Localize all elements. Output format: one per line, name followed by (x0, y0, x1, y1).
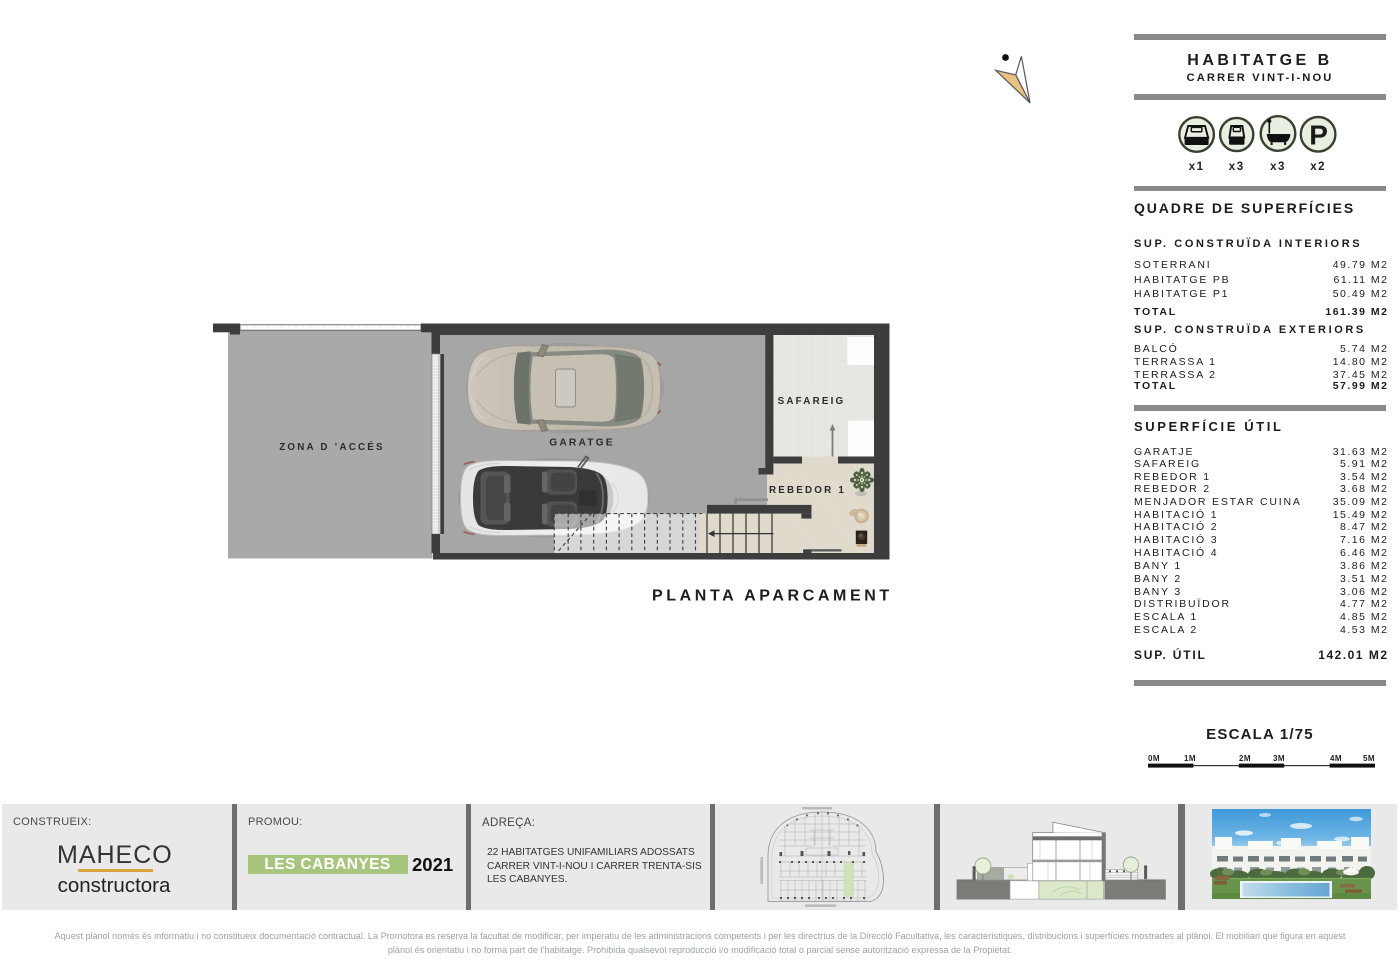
svg-text:2M: 2M (1239, 754, 1251, 763)
svg-text:x3: x3 (1229, 161, 1245, 173)
svg-text:ZONA D ’ACCÉS: ZONA D ’ACCÉS (279, 441, 385, 453)
svg-text:0M: 0M (1148, 754, 1160, 763)
svg-text:x2: x2 (1310, 161, 1326, 173)
svg-text:PLANTA APARCAMENT: PLANTA APARCAMENT (652, 588, 893, 605)
svg-text:1M: 1M (1184, 754, 1196, 763)
svg-text:GARATGE: GARATGE (549, 438, 615, 449)
svg-text:SAFAREIG: SAFAREIG (778, 396, 846, 407)
svg-text:x3: x3 (1270, 161, 1286, 173)
svg-text:5M: 5M (1363, 754, 1375, 763)
svg-text:4M: 4M (1330, 754, 1342, 763)
svg-text:P: P (1309, 120, 1328, 151)
svg-text:x1: x1 (1189, 161, 1205, 173)
svg-text:3M: 3M (1273, 754, 1285, 763)
svg-text:REBEDOR 1: REBEDOR 1 (769, 485, 846, 496)
